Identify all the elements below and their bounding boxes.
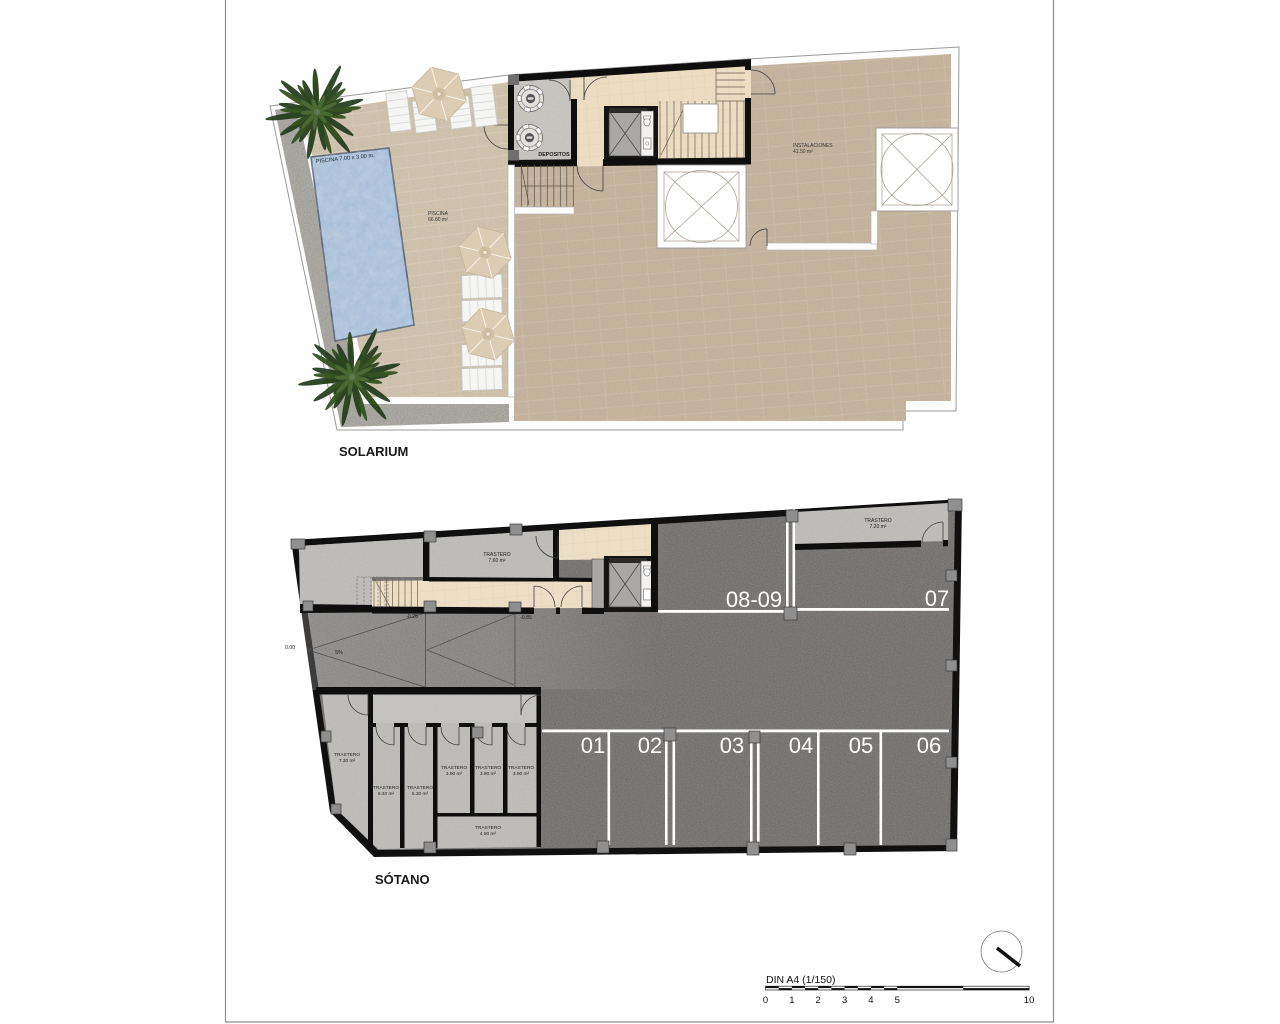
svg-text:TRASTERO: TRASTERO — [475, 765, 501, 771]
svg-text:6.40 m²: 6.40 m² — [378, 791, 395, 797]
svg-text:DIN A4 (1/150): DIN A4 (1/150) — [766, 974, 835, 986]
svg-text:05: 05 — [849, 733, 873, 758]
svg-text:7.30 m²: 7.30 m² — [339, 758, 356, 764]
svg-text:04: 04 — [789, 733, 813, 758]
svg-text:02: 02 — [638, 733, 662, 758]
svg-text:0.00: 0.00 — [285, 645, 295, 651]
svg-text:07: 07 — [925, 586, 949, 611]
svg-text:3.90 m²: 3.90 m² — [480, 771, 497, 777]
svg-text:TRASTERO: TRASTERO — [508, 765, 534, 771]
svg-text:DEPOSITOS: DEPOSITOS — [538, 152, 570, 158]
svg-text:3.90 m²: 3.90 m² — [513, 771, 530, 777]
svg-text:3: 3 — [842, 995, 847, 1006]
svg-text:SÓTANO: SÓTANO — [375, 872, 430, 887]
svg-text:-0.25: -0.25 — [406, 614, 418, 620]
svg-text:2: 2 — [816, 995, 821, 1006]
svg-text:SOLARIUM: SOLARIUM — [339, 444, 408, 459]
svg-text:TRASTERO: TRASTERO — [441, 765, 467, 771]
svg-text:1: 1 — [789, 995, 794, 1006]
svg-text:6.30 m²: 6.30 m² — [412, 791, 429, 797]
svg-text:7.60 m²: 7.60 m² — [489, 558, 506, 564]
svg-text:TRASTERO: TRASTERO — [407, 785, 433, 791]
svg-text:4: 4 — [868, 995, 873, 1006]
svg-text:5: 5 — [895, 995, 900, 1006]
svg-text:06: 06 — [917, 733, 941, 758]
svg-text:3.90 m²: 3.90 m² — [446, 771, 463, 777]
svg-text:10: 10 — [1024, 995, 1035, 1006]
svg-text:TRASTERO: TRASTERO — [373, 785, 399, 791]
svg-text:03: 03 — [720, 733, 744, 758]
svg-text:66.80 m²: 66.80 m² — [428, 217, 448, 223]
svg-text:7.20 m²: 7.20 m² — [870, 524, 887, 530]
svg-text:01: 01 — [581, 733, 605, 758]
svg-text:08-09: 08-09 — [726, 587, 782, 612]
svg-text:-0.85: -0.85 — [520, 615, 532, 621]
svg-text:0: 0 — [763, 995, 768, 1006]
svg-text:41.50 m²: 41.50 m² — [793, 149, 813, 155]
svg-text:TRASTERO: TRASTERO — [475, 825, 501, 831]
svg-text:TRASTERO: TRASTERO — [334, 752, 360, 758]
svg-text:4.50 m²: 4.50 m² — [480, 831, 497, 837]
svg-text:5%: 5% — [335, 650, 343, 656]
